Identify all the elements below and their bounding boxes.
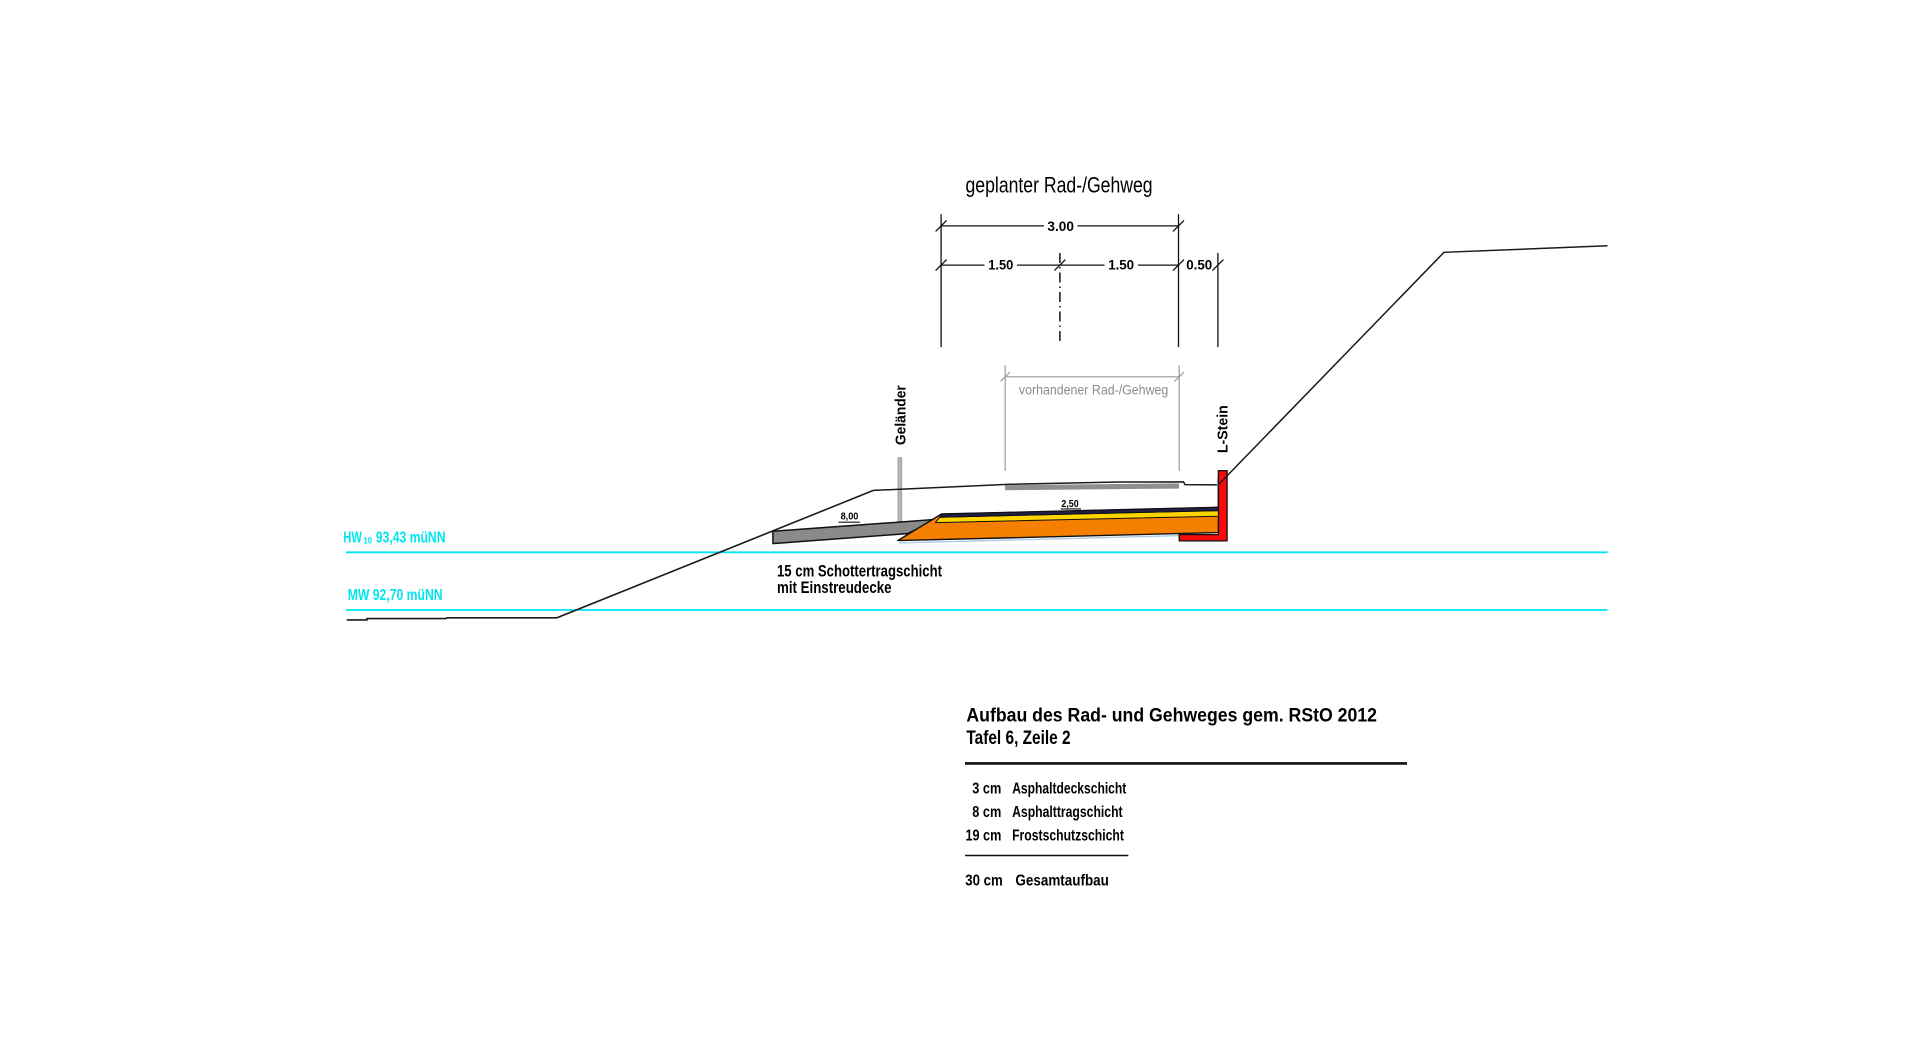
svg-text:0.50: 0.50: [1186, 257, 1212, 273]
svg-text:Gesamtaufbau: Gesamtaufbau: [1015, 872, 1109, 889]
svg-text:15 cm Schottertragschicht: 15 cm Schottertragschicht: [777, 562, 942, 580]
svg-text:30 cm: 30 cm: [965, 872, 1003, 889]
svg-text:1.50: 1.50: [1108, 257, 1134, 273]
svg-text:3.00: 3.00: [1047, 218, 1074, 234]
svg-text:8 cm: 8 cm: [972, 804, 1001, 821]
svg-text:10: 10: [363, 536, 372, 546]
svg-text:MW 92,70 müNN: MW 92,70 müNN: [348, 587, 443, 604]
svg-text:Asphalttragschicht: Asphalttragschicht: [1012, 804, 1123, 821]
svg-text:1.50: 1.50: [988, 257, 1013, 273]
svg-text:geplanter Rad-/Gehweg: geplanter Rad-/Gehweg: [966, 173, 1153, 198]
svg-text:8,00: 8,00: [841, 511, 859, 522]
svg-text:Aufbau des Rad- und Gehweges g: Aufbau des Rad- und Gehweges gem. RStO 2…: [966, 706, 1377, 727]
svg-text:HW: HW: [343, 530, 362, 547]
svg-text:93,43 müNN: 93,43 müNN: [376, 530, 446, 547]
svg-text:mit Einstreudecke: mit Einstreudecke: [777, 579, 892, 597]
svg-text:Tafel 6, Zeile 2: Tafel 6, Zeile 2: [966, 728, 1070, 749]
svg-text:L-Stein: L-Stein: [1215, 405, 1231, 453]
svg-text:vorhandener Rad-/Gehweg: vorhandener Rad-/Gehweg: [1019, 382, 1168, 398]
svg-text:3 cm: 3 cm: [972, 781, 1001, 798]
svg-text:Geländer: Geländer: [894, 385, 910, 445]
svg-text:Frostschutzschicht: Frostschutzschicht: [1012, 828, 1124, 845]
svg-text:Asphaltdeckschicht: Asphaltdeckschicht: [1012, 781, 1126, 798]
svg-text:19 cm: 19 cm: [966, 828, 1002, 845]
